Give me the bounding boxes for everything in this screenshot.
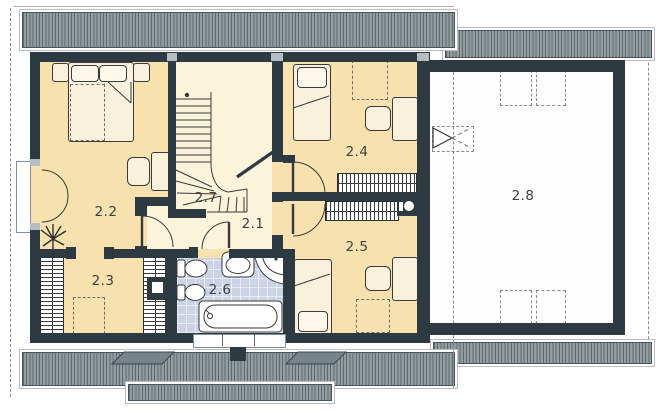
washbasin-shelf [399,202,403,211]
roof-dormer-bottom [128,384,332,401]
room-label-2-6: 2.6 [209,282,232,298]
wall-cap [30,159,40,166]
wall-cap [271,53,283,61]
wardrobe-room24 [337,173,417,193]
desk-room24 [392,97,418,141]
wall-stairwell-west [168,62,176,218]
balcony-platform [16,161,31,233]
doorway-jamb [189,247,198,258]
room-label-2-2: 2.2 [95,204,118,220]
room-label-2-7: 2.7 [195,190,218,206]
room-label-2-8: 2.8 [512,188,535,204]
bed-pillow [298,311,328,332]
attic-hatch-dashed [432,126,474,152]
wall-cap [167,53,177,61]
closet-slope-dashed [73,297,105,334]
wall-closet-north-east [106,249,197,258]
wall-bath-north-east [229,249,283,258]
wall-garage-top [430,60,625,72]
wardrobe-room25 [325,201,399,221]
roof-eave-top-garage [445,30,652,58]
bathroom-window-mullion [222,334,223,346]
wall-cap [30,223,40,230]
chair-room25 [365,266,391,291]
wall-main-left-lower [30,224,40,343]
bed-under-slope-dashed [70,84,105,141]
wardrobe-closet-left [40,257,64,335]
wall-bedrooms-west-pier [272,192,283,202]
floor-stair-hall [176,62,272,212]
roof-eave-top-main [22,12,455,48]
floor-balcony-door-gap [30,166,40,224]
nightstand-left [52,63,69,82]
ceiling-height-dashed-line [453,72,454,388]
chair-room24 [365,106,391,131]
chimney-flue [152,282,163,293]
room-label-2-5: 2.5 [346,239,369,255]
room-label-2-4: 2.4 [346,144,369,160]
wall-stair-bottom-stub [168,209,206,218]
chair-room22 [127,157,150,186]
bed-pillow [71,65,99,82]
wall-room24-room25-divider [283,192,417,201]
wall-bedrooms-west-lower [272,235,283,250]
wall-room22-hall-upper [135,197,147,216]
desk-room25 [392,257,418,301]
doorway-jamb [283,155,295,163]
room-label-2-1: 2.1 [242,216,265,232]
wall-garage-east [613,60,625,335]
bed-pillow [297,67,327,88]
washbasin-bowl [404,201,414,211]
bed-pillow [99,65,127,82]
wall-main-top [30,52,430,62]
wall-bath-east [283,249,295,333]
roof-outline-top-line [14,6,454,7]
wall-bedrooms-west-upper [272,62,283,162]
doorway-jamb [66,247,76,259]
wall-main-left-upper [30,52,40,166]
slope-dashed-room25 [356,299,390,333]
doorway-jamb [104,247,114,259]
roof-edge-left-dashed [10,8,11,397]
bathroom-window-mullion [254,334,255,346]
roof-edge-right-dashed [648,28,649,364]
wall-garage-bottom [430,323,625,335]
skylight-dashed-room24 [352,60,388,100]
room-label-2-3: 2.3 [92,273,115,289]
wall-main-east [417,52,430,343]
wall-bath-west [165,257,177,333]
wall-cap [417,53,429,61]
roof-eave-bottom-garage [433,342,652,364]
bathroom-window [193,334,286,348]
roof-chimney [230,347,246,361]
nightstand-right [133,63,150,82]
floor-plan: 2.1 2.2 2.3 2.4 2.5 2.6 2.7 2.8 [0,0,660,411]
